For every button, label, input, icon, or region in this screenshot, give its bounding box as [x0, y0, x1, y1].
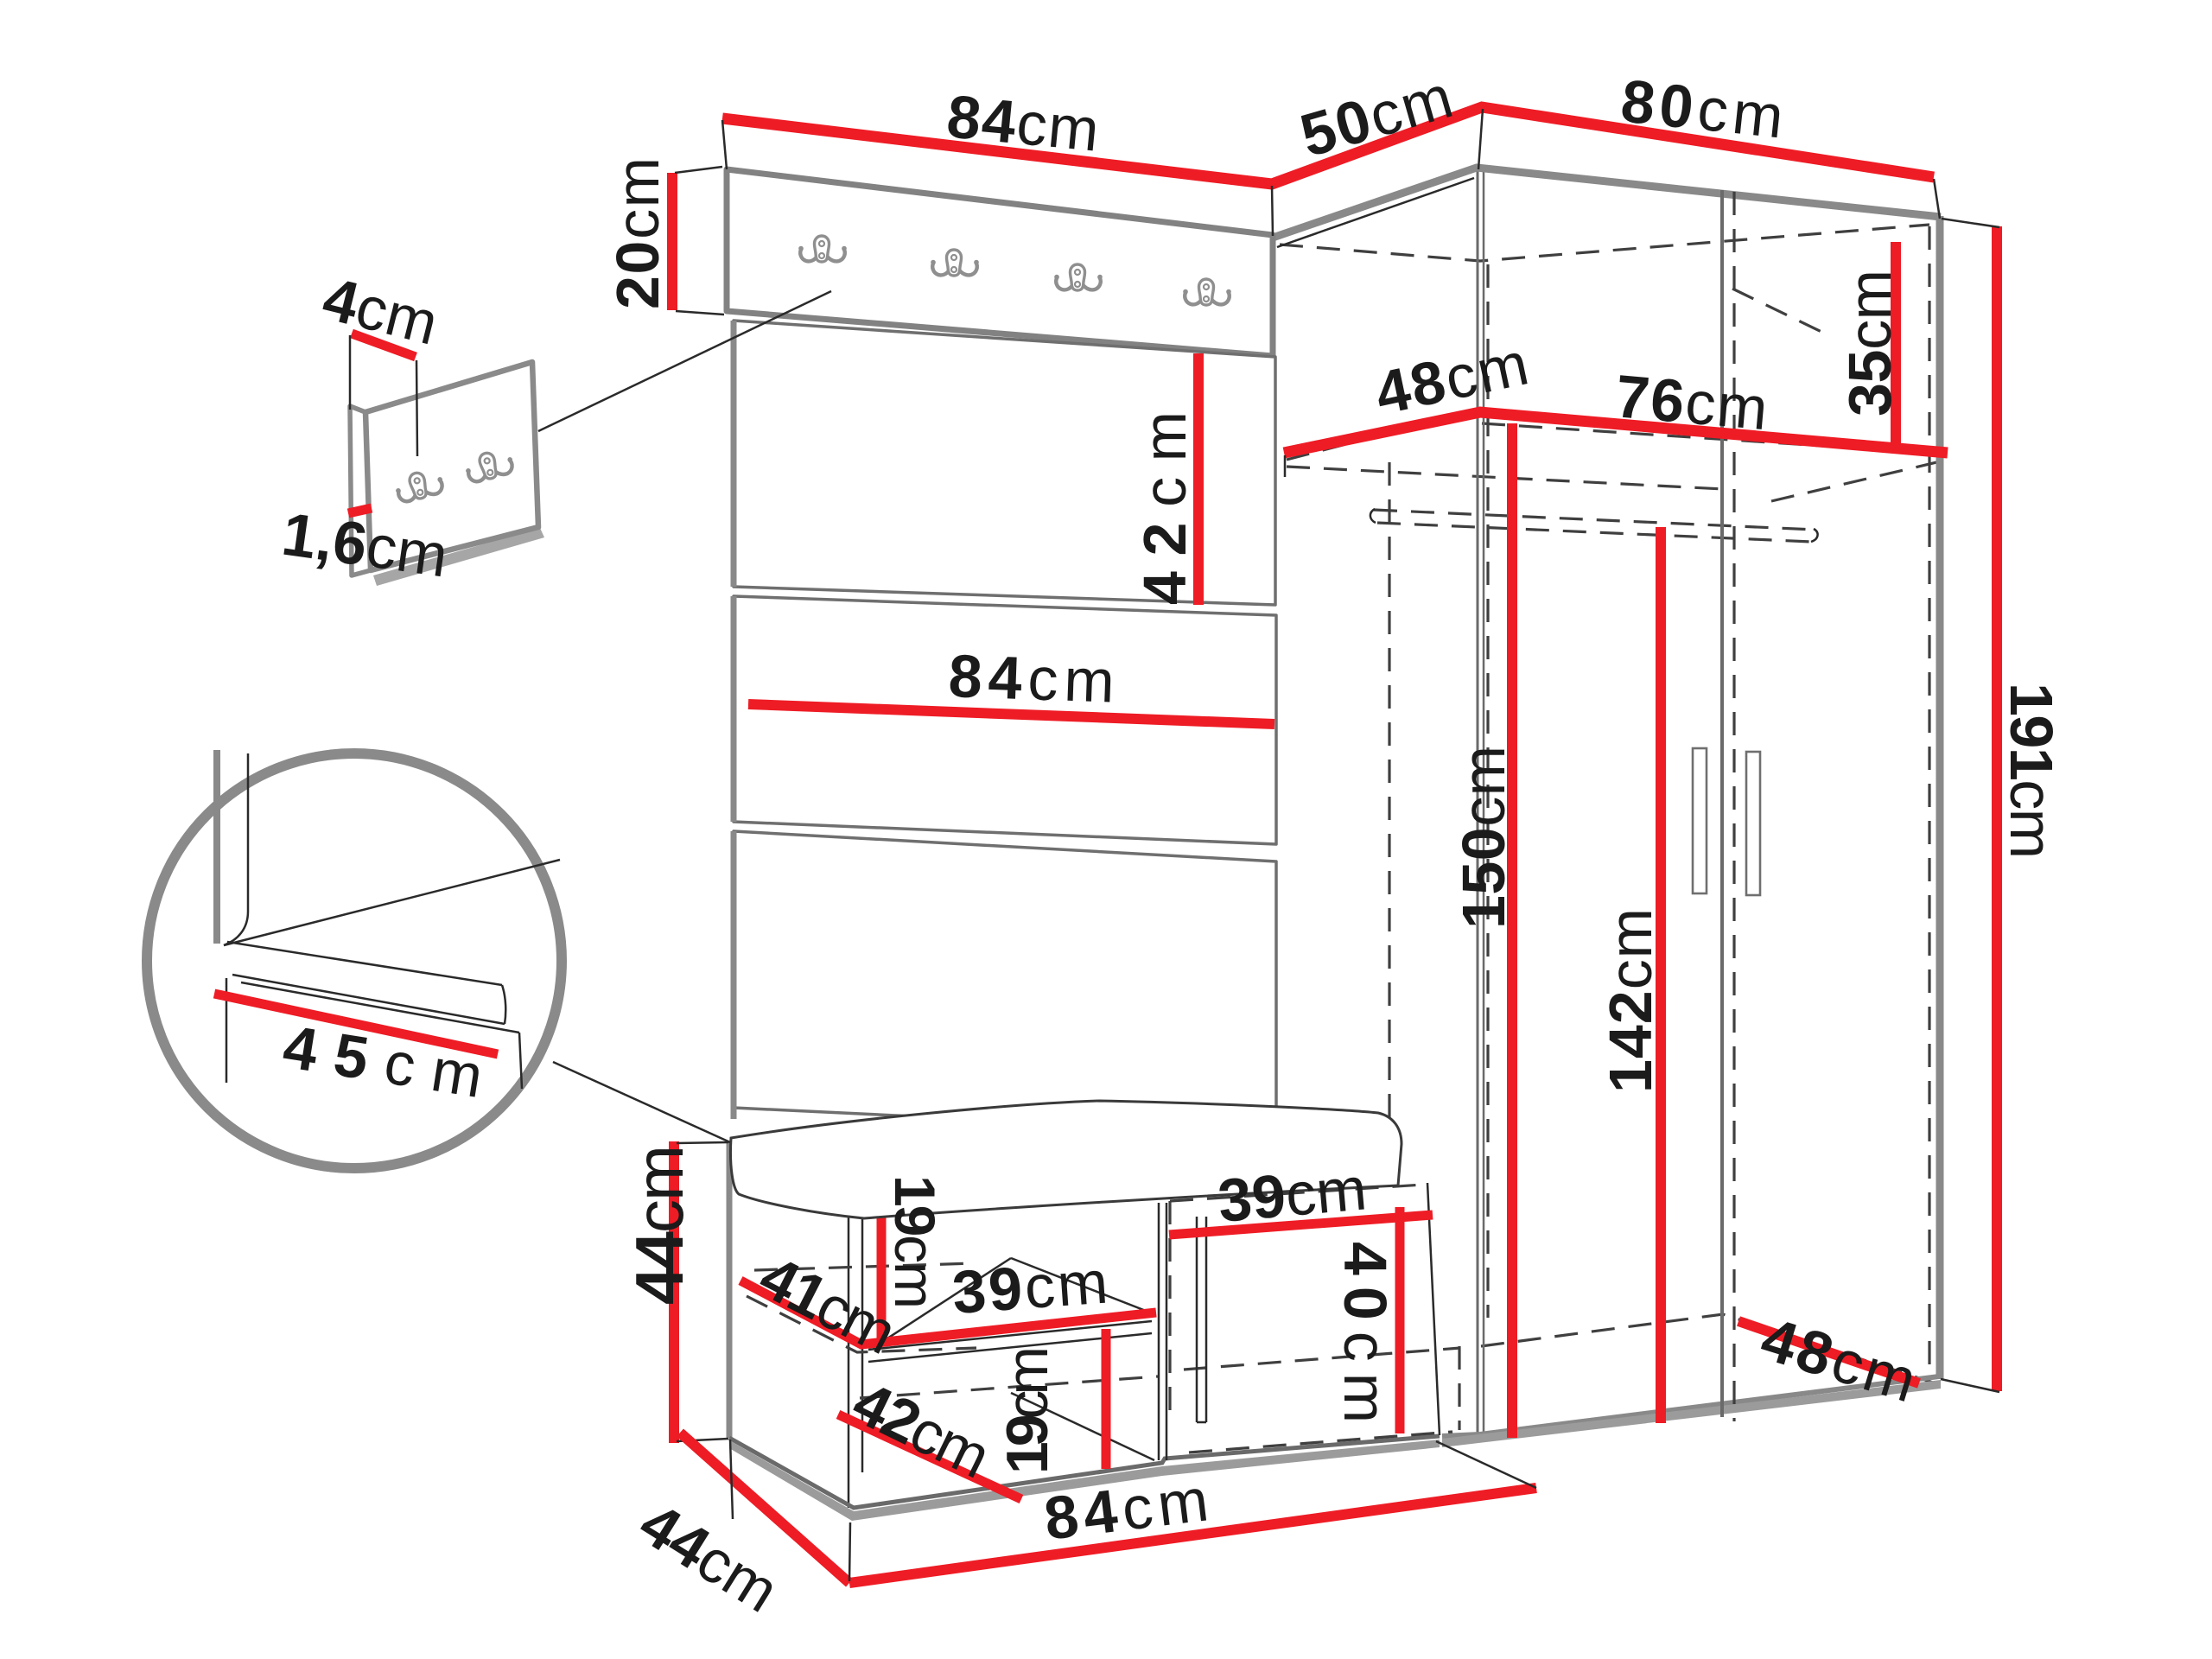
svg-text:39cm: 39cm [950, 1249, 1110, 1326]
svg-text:150cm: 150cm [1450, 746, 1517, 929]
svg-text:44cm: 44cm [621, 1145, 697, 1305]
svg-text:142cm: 142cm [1597, 908, 1664, 1093]
svg-text:19cm: 19cm [883, 1175, 947, 1309]
svg-text:76cm: 76cm [1613, 362, 1770, 442]
svg-text:191cm: 191cm [1998, 683, 2065, 859]
svg-text:19cm: 19cm [995, 1346, 1060, 1474]
svg-text:40cm: 40cm [1332, 1242, 1399, 1423]
svg-text:35cm: 35cm [1836, 270, 1904, 416]
svg-text:84cm: 84cm [947, 642, 1116, 715]
svg-text:20cm: 20cm [604, 157, 671, 309]
svg-text:39cm: 39cm [1216, 1154, 1370, 1235]
